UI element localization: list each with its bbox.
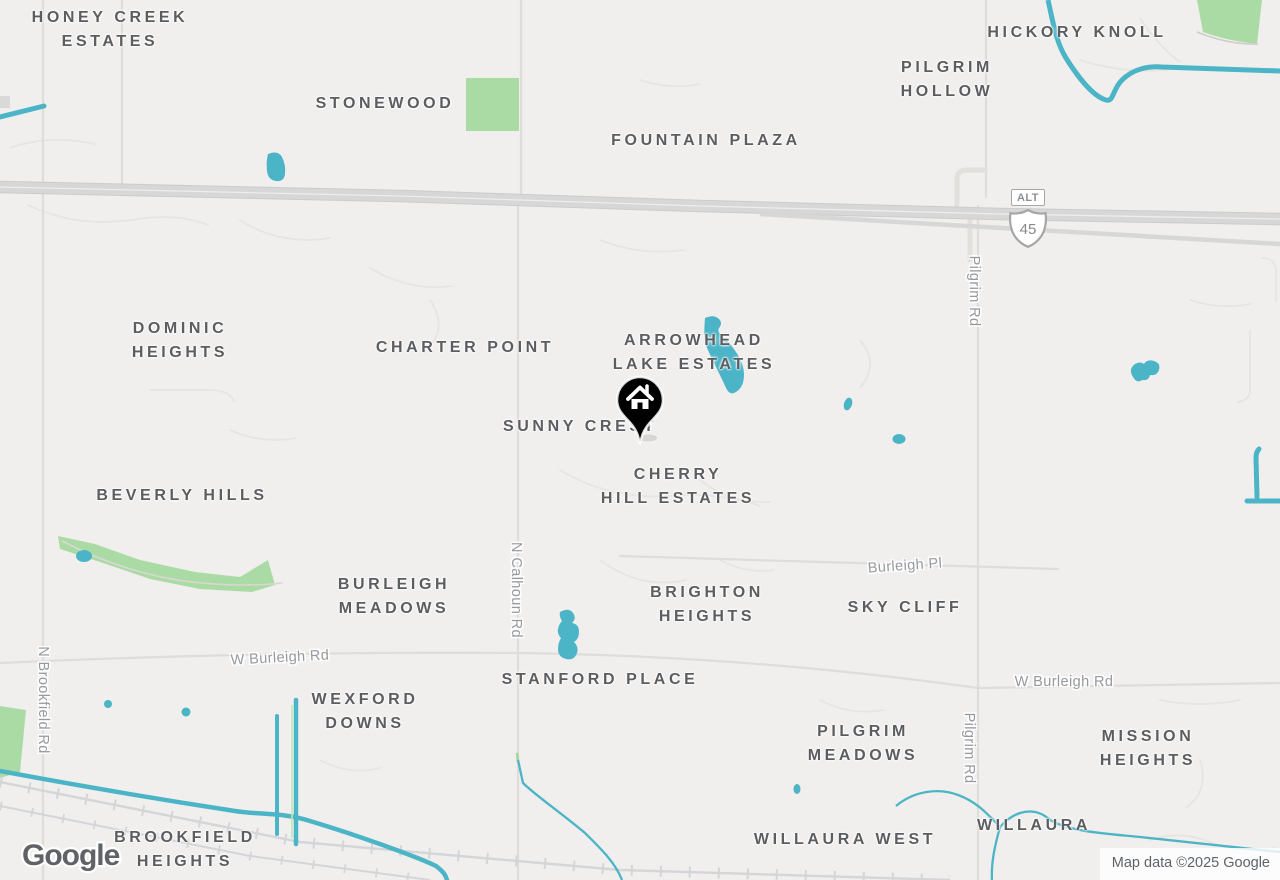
map-data-attribution: Map data ©2025 Google — [1100, 848, 1280, 880]
pond-dot-4 — [842, 397, 854, 412]
pond-dot-3 — [794, 784, 801, 794]
pond-dot-2 — [182, 708, 191, 717]
park-brookfield — [0, 706, 26, 778]
road-w-burleigh-rd — [0, 653, 1280, 688]
park-beverly-hills — [58, 536, 275, 592]
road-pilgrim-rd — [978, 0, 986, 880]
map-canvas[interactable]: HONEY CREEKESTATESSTONEWOODFOUNTAIN PLAZ… — [0, 0, 1280, 880]
route-shield-alt-45: ALT 45 — [1005, 189, 1051, 249]
highway-layer — [0, 187, 1280, 244]
google-logo[interactable]: Google — [16, 832, 146, 878]
creek-right-edge — [1247, 449, 1280, 501]
home-marker[interactable] — [608, 369, 672, 445]
us-route-shield-icon: 45 — [1005, 207, 1051, 249]
park-hickory-knoll — [1197, 0, 1262, 44]
road-stub — [0, 96, 10, 108]
arrowhead-lake — [704, 316, 744, 393]
pond-dot-1 — [104, 700, 112, 708]
pond-beverly — [76, 550, 92, 562]
route-number: 45 — [1020, 221, 1037, 238]
pond-stonewood — [267, 153, 286, 182]
road-burleigh-pl — [620, 556, 1058, 569]
road-n-calhoun-rd — [518, 0, 521, 880]
pond-calhoun — [558, 610, 579, 660]
route-banner: ALT — [1011, 189, 1045, 206]
google-logo-text: Google — [22, 839, 120, 872]
pond-dot-5 — [893, 434, 906, 444]
pond-mission — [1131, 360, 1160, 381]
park-stonewood — [466, 78, 519, 131]
